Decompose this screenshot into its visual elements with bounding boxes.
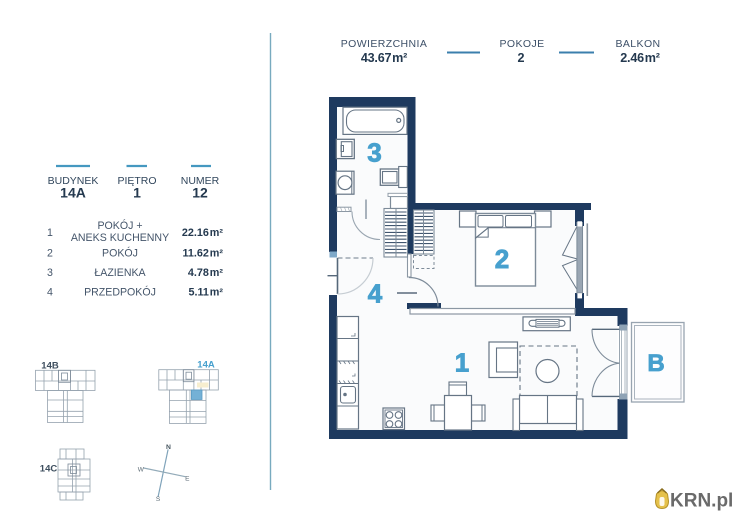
svg-text:4: 4 <box>47 287 53 299</box>
svg-text:14C: 14C <box>40 464 58 475</box>
svg-text:4: 4 <box>368 279 383 309</box>
svg-text:POKOJE: POKOJE <box>500 38 545 50</box>
svg-text:11.62 m²: 11.62 m² <box>182 248 223 260</box>
svg-text:4.78 m²: 4.78 m² <box>188 267 224 279</box>
svg-text:W: W <box>138 466 145 473</box>
svg-text:2: 2 <box>517 51 524 65</box>
svg-text:2: 2 <box>495 244 509 274</box>
svg-text:PRZEDPOKÓJ: PRZEDPOKÓJ <box>84 286 156 299</box>
svg-text:N: N <box>166 444 171 451</box>
svg-text:14A: 14A <box>197 360 215 371</box>
svg-text:BALKON: BALKON <box>616 38 661 50</box>
svg-text:KRN.pl: KRN.pl <box>670 491 733 512</box>
svg-text:2.46 m²: 2.46 m² <box>620 51 660 65</box>
svg-text:POKÓJ: POKÓJ <box>102 247 138 260</box>
svg-text:1: 1 <box>133 185 141 201</box>
svg-text:ŁAZIENKA: ŁAZIENKA <box>94 267 146 279</box>
svg-text:3: 3 <box>47 267 53 279</box>
svg-text:B: B <box>647 350 664 377</box>
svg-text:POKÓJ +: POKÓJ + <box>97 219 142 232</box>
svg-text:S: S <box>156 496 161 503</box>
svg-text:1: 1 <box>47 227 53 239</box>
svg-text:43.67 m²: 43.67 m² <box>361 51 407 65</box>
svg-text:3: 3 <box>367 138 381 168</box>
svg-text:5.11 m²: 5.11 m² <box>188 287 223 299</box>
svg-text:22.16 m²: 22.16 m² <box>182 227 224 239</box>
svg-text:E: E <box>185 475 190 482</box>
svg-text:ANEKS KUCHENNY: ANEKS KUCHENNY <box>71 232 169 244</box>
svg-text:2: 2 <box>47 248 53 260</box>
svg-text:POWIERZCHNIA: POWIERZCHNIA <box>341 38 427 50</box>
svg-text:12: 12 <box>192 185 208 201</box>
svg-text:14B: 14B <box>41 361 59 372</box>
svg-text:1: 1 <box>455 348 469 378</box>
svg-text:14A: 14A <box>60 185 86 201</box>
